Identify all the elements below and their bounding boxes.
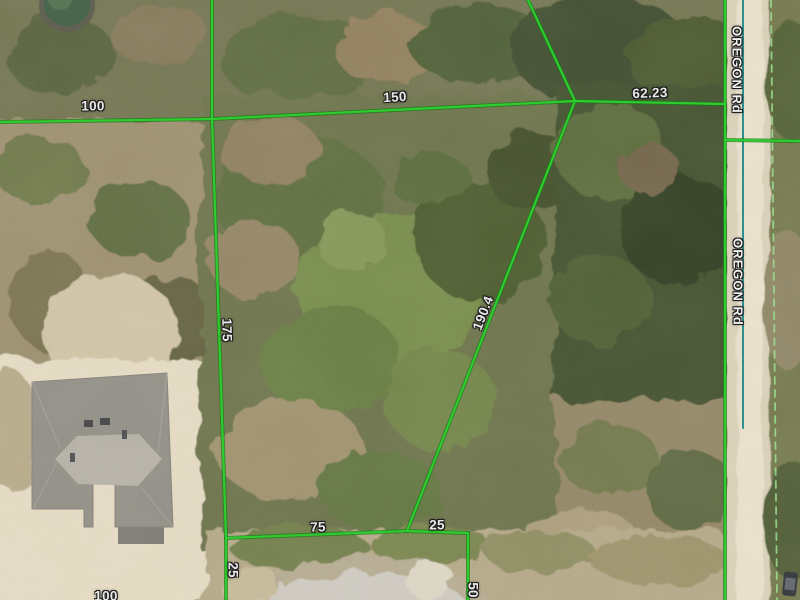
north-62-23 bbox=[575, 101, 724, 104]
parcel-boundary-lines bbox=[0, 0, 800, 600]
map-canvas[interactable]: 100 150 62.23 175 190.4 75 25 25 50 100 … bbox=[0, 0, 800, 600]
dashed-row-line bbox=[771, 0, 777, 600]
northeast-diagonal bbox=[528, 0, 575, 101]
south-75 bbox=[226, 531, 407, 538]
road-crossing bbox=[725, 140, 800, 141]
north-boundary-adjacent bbox=[0, 119, 212, 122]
north-150 bbox=[212, 101, 575, 119]
west-175 bbox=[212, 119, 226, 538]
southeast-190-4 bbox=[407, 101, 575, 531]
